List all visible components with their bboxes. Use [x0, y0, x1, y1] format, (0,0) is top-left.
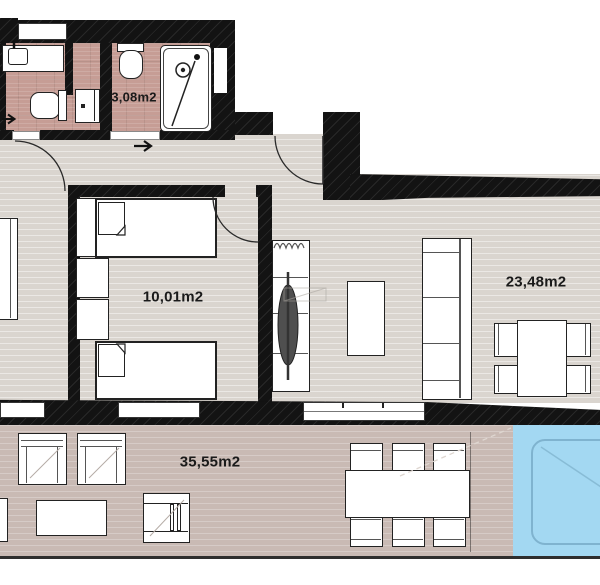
wall-niche: [214, 48, 227, 93]
dining-table: [517, 320, 567, 397]
toilet-tank-wc: [58, 90, 67, 121]
terrace-armchair: [77, 433, 126, 485]
terrace-lounge-chair: [143, 493, 190, 543]
hall-cabinet: [0, 218, 18, 320]
sliding-door-tick: [342, 403, 344, 408]
wardrobe-shelf: [273, 277, 308, 278]
wardrobe: [272, 240, 310, 392]
sliding-door-tick: [382, 403, 384, 408]
wall-top-left: [0, 18, 18, 43]
bed-2-pillow: [98, 344, 125, 377]
wall-bath-divider-1: [65, 43, 73, 95]
window-hall: [0, 402, 45, 418]
living-room-area-label: 23,48m2: [506, 274, 567, 291]
wardrobe-shelf: [273, 313, 308, 314]
toilet-bowl-bathroom: [119, 50, 143, 79]
door-sill-bathroom: [110, 131, 160, 140]
washing-machine-line: [94, 90, 95, 121]
sofa-cushion-line: [423, 343, 459, 344]
entry-threshold: [273, 112, 323, 134]
terrace-side-chair: [0, 498, 8, 542]
terrace-coffee-table: [36, 500, 107, 536]
terrace-area-label: 35,55m2: [180, 454, 241, 471]
terrace-divider-line: [470, 432, 471, 552]
swimming-pool-edge: [531, 439, 600, 545]
window-bedroom: [118, 402, 200, 418]
sofa-cushion-line: [423, 297, 459, 298]
toilet-bowl-wc: [30, 92, 60, 119]
sofa-backrest-line: [459, 239, 461, 398]
sliding-door-terrace: [303, 402, 425, 421]
door-sill-wc: [12, 131, 40, 140]
hall-cabinet-line: [10, 219, 11, 318]
bedroom-cabinet-2: [76, 299, 109, 340]
outside-area-right: [357, 112, 600, 174]
bedroom-area-label: 10,01m2: [143, 289, 204, 306]
terrace-armchair: [18, 433, 67, 485]
sofa: [422, 238, 472, 400]
swimming-pool: [513, 425, 600, 558]
washing-machine: [75, 89, 100, 123]
nightstand: [76, 198, 96, 257]
outdoor-dining-table: [345, 470, 470, 518]
shower-tray: [160, 45, 212, 132]
wall-bedroom-top: [68, 185, 225, 197]
bathroom-window: [18, 23, 67, 40]
coffee-table: [347, 281, 385, 356]
washing-machine-knob: [81, 104, 85, 108]
sink: [8, 48, 28, 65]
sofa-armrest-line: [423, 252, 459, 253]
shower-inner-edge: [163, 48, 209, 129]
wall-entry-left: [235, 112, 273, 135]
wardrobe-shelf: [273, 353, 308, 354]
wall-bath-divider-2: [100, 43, 112, 133]
wall-bath-bottom-b: [40, 130, 110, 140]
bedroom-cabinet-1: [76, 258, 109, 298]
sliding-door-rail: [304, 411, 424, 412]
floor-plan: 3,08m2 10,01m2 23,48m2 35,55m2: [0, 0, 600, 585]
bed-1-pillow: [98, 202, 125, 235]
sofa-armrest-line: [423, 380, 459, 381]
bathroom-area-label: 3,08m2: [111, 90, 156, 105]
outside-area-top: [235, 0, 600, 113]
terrace-edge-line: [0, 556, 600, 559]
wall-bedroom-right: [258, 185, 272, 408]
